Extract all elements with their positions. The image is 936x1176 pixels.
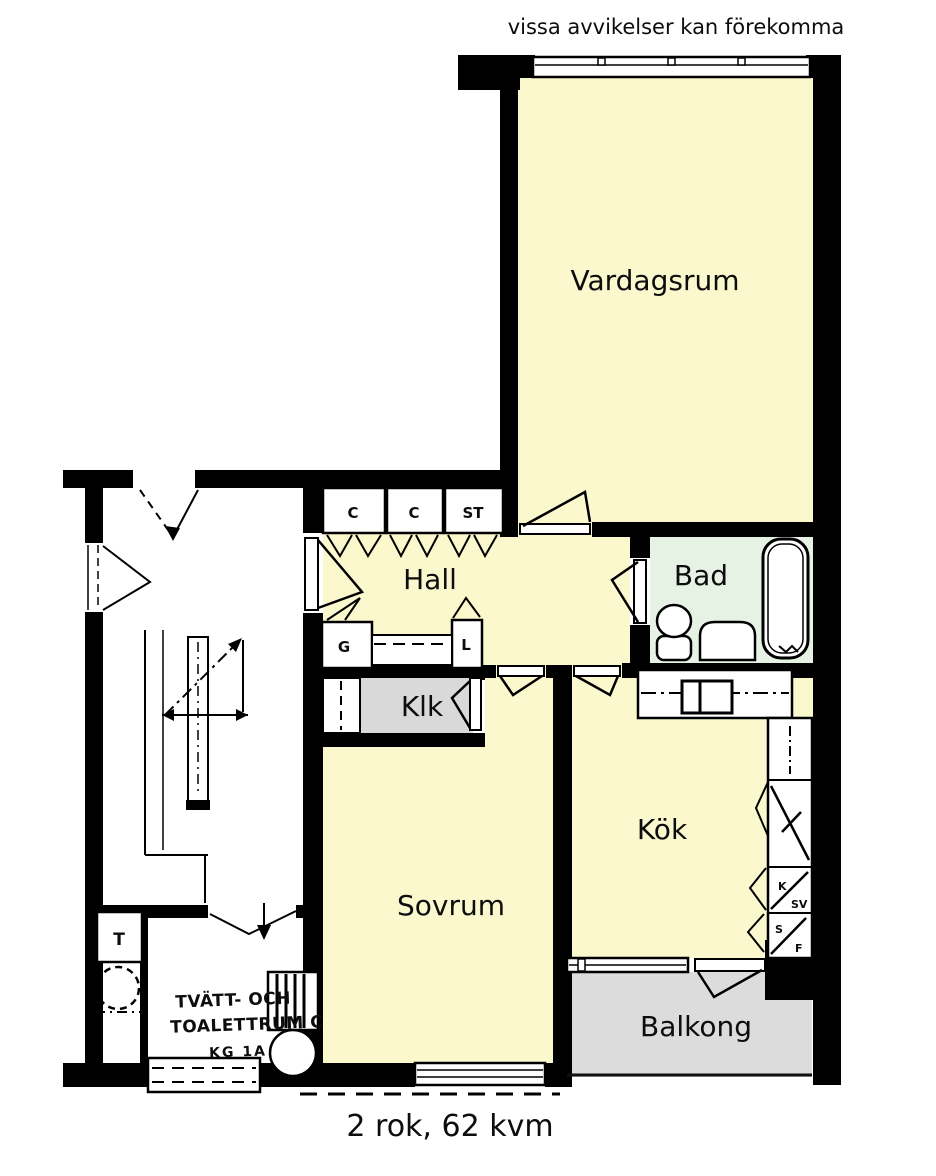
closet-g-label: G: [338, 638, 350, 656]
wall-sovrum-kok-divider: [553, 665, 572, 1087]
sovrum-window: [415, 1063, 545, 1085]
laundry-basin: [270, 1030, 316, 1076]
hall-bench: [372, 635, 452, 665]
vardagsrum-door-leaf: [520, 524, 590, 534]
balkong-door-leaf: [695, 959, 765, 971]
vardagsrum-label: Vardagsrum: [571, 264, 740, 297]
wall-right: [813, 55, 841, 1085]
laundry-arrow-head: [257, 925, 271, 940]
frys-label-top: S: [775, 923, 783, 936]
sink: [700, 622, 755, 660]
wall-vardagsrum-bottom: [592, 522, 815, 537]
closet-c1-label: C: [347, 504, 358, 522]
wall-bad-left-a: [630, 537, 650, 558]
stair-flight-cap: [186, 800, 210, 810]
balkong-label: Balkong: [640, 1010, 752, 1043]
kok-window-mullion: [578, 959, 585, 971]
vardagsrum-floor: [518, 76, 813, 522]
wall-left-a: [85, 488, 103, 543]
sovrum-door-leaf: [498, 666, 544, 676]
landing-door-arrow: [165, 526, 180, 541]
kyl-label-top: K: [778, 880, 787, 893]
laundry-line3: KG 1A: [209, 1043, 267, 1061]
bad-door-leaf: [634, 560, 646, 623]
laundry-line1: TVÄTT- OCH: [175, 987, 291, 1013]
klk-door-leaf: [470, 678, 481, 730]
laundry-door-swing: [210, 911, 296, 934]
wall-left-b: [85, 612, 103, 1087]
bathtub: [763, 539, 808, 658]
laundry-t-label: T: [113, 930, 125, 950]
laundry-machine: [97, 967, 139, 1009]
wall-sovrum-bottom: [303, 1063, 415, 1087]
wall-bottom-a: [63, 1063, 148, 1087]
toilet-bowl: [657, 605, 691, 637]
entry-door-leaf: [305, 538, 318, 610]
bad-label: Bad: [674, 559, 728, 592]
floorplan-drawing: C C ST G L: [0, 0, 936, 1176]
frys-label-bottom: F: [795, 942, 803, 955]
closet-l-label: L: [461, 636, 471, 654]
sovrum-entry-floor: [485, 678, 553, 747]
stove: [682, 681, 732, 713]
window-mullion: [738, 58, 745, 65]
wall-hall-left-a: [303, 488, 323, 533]
closet-c2-label: C: [408, 504, 419, 522]
footer-text: 2 rok, 62 kvm: [346, 1109, 553, 1144]
disclaimer-text: vissa avvikelser kan förekomma: [508, 15, 845, 39]
wall-hall-top: [195, 470, 518, 488]
entrance-steps: [148, 1058, 260, 1092]
wall-vardagsrum-left: [500, 78, 518, 537]
kyl-label-bottom: SV: [791, 898, 808, 911]
kok-label: Kök: [637, 813, 688, 846]
stair-up-arrow-line: [165, 642, 238, 715]
left-opening-gap: [83, 543, 105, 612]
wall-landing-top: [63, 470, 133, 488]
wall-laundry-b: [296, 905, 305, 918]
sovrum-label: Sovrum: [397, 889, 505, 922]
wall-klk-bottom: [303, 733, 485, 747]
hall-label: Hall: [403, 563, 457, 596]
toilet-tank: [657, 636, 691, 660]
window-mullion: [668, 58, 675, 65]
window-mullion: [598, 58, 605, 65]
left-opening-swing: [103, 546, 150, 610]
kok-door-leaf: [574, 666, 620, 676]
klk-label: Klk: [401, 690, 444, 723]
floorplan-page: C C ST G L: [0, 0, 936, 1176]
closet-st-label: ST: [462, 504, 484, 522]
